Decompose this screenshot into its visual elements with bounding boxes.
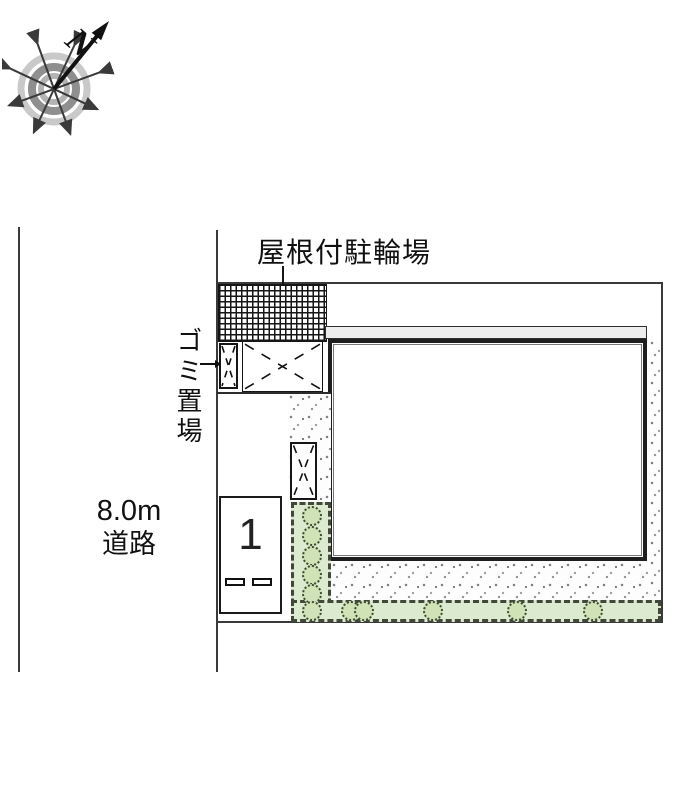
bicycle-parking-label: 屋根付駐輪場 (257, 231, 431, 271)
bush-icon (423, 601, 443, 621)
road-label: 8.0m 道路 (84, 495, 174, 561)
concrete-strip-east (649, 339, 661, 601)
storage-box (290, 442, 317, 500)
bush-icon (354, 601, 374, 621)
dashed-x-icon (221, 345, 236, 387)
site-plan: N 屋根付駐輪場 ゴミ置場 (0, 0, 673, 791)
bush-icon (302, 601, 322, 621)
east-boundary-line (661, 282, 663, 623)
road-width-label: 8.0m (84, 495, 174, 528)
parking-space-number: 1 (221, 510, 280, 560)
bicycle-parking-canopy (218, 284, 327, 342)
bush-icon (302, 565, 322, 585)
arrow-right-icon (200, 358, 222, 370)
wheel-stopper (252, 578, 272, 586)
building-outline (328, 339, 647, 561)
compass-rose-icon: N (2, 4, 127, 139)
bush-icon (302, 506, 322, 526)
garbage-area-label: ゴミ置場 (172, 327, 204, 467)
road-edge-line (18, 227, 20, 672)
bush-icon (302, 546, 322, 566)
dashed-x-icon (243, 342, 322, 391)
concrete-strip-south (331, 561, 649, 601)
building-eave-band (325, 326, 647, 339)
bush-icon (302, 526, 322, 546)
bush-icon (507, 601, 527, 621)
wheel-stopper (225, 578, 245, 586)
bush-icon (583, 601, 603, 621)
bicycle-parking-ground (242, 341, 323, 392)
parking-space-1: 1 (219, 496, 282, 614)
building-inner-wall-line (333, 344, 642, 556)
bicycle-area-bottom-line (217, 392, 331, 394)
dashed-x-icon (292, 444, 315, 498)
road-name-label: 道路 (84, 528, 174, 561)
